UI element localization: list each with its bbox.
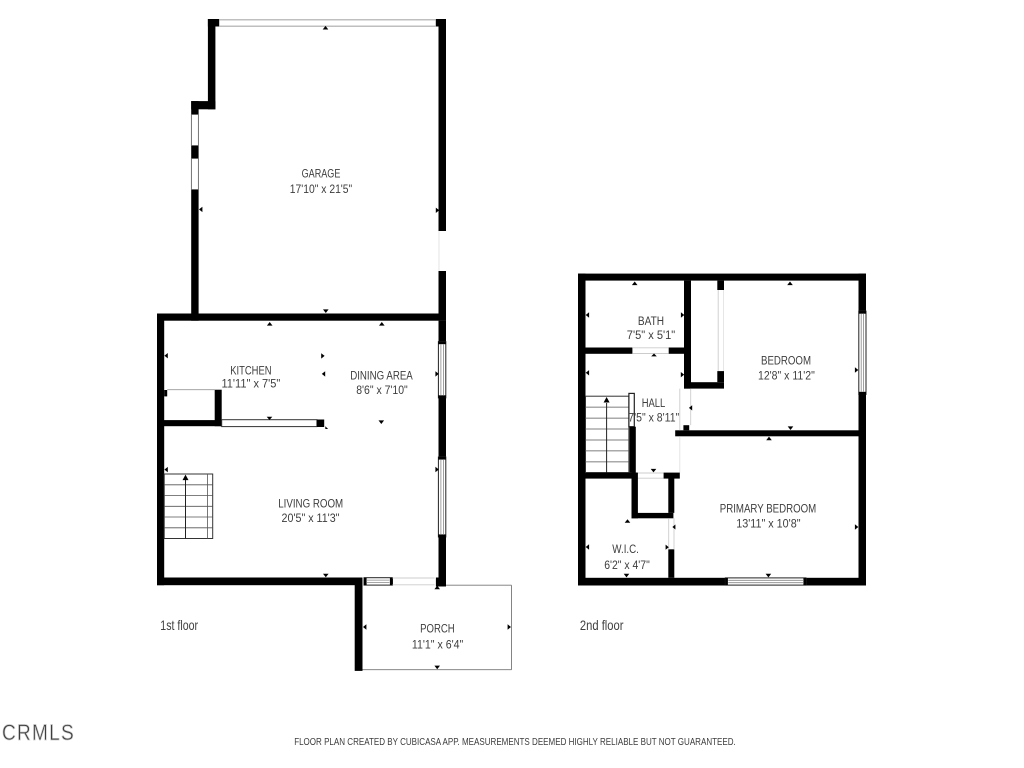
svg-text:17'10" x 21'5": 17'10" x 21'5" — [290, 184, 352, 196]
svg-text:2nd floor: 2nd floor — [580, 617, 624, 633]
svg-text:DINING AREA: DINING AREA — [350, 370, 413, 382]
svg-text:7'5" x 5'1": 7'5" x 5'1" — [627, 330, 675, 342]
svg-text:W.I.C.: W.I.C. — [612, 544, 639, 556]
svg-text:20'5" x 11'3": 20'5" x 11'3" — [282, 513, 340, 525]
svg-text:PORCH: PORCH — [420, 624, 455, 636]
svg-text:13'11" x 10'8": 13'11" x 10'8" — [736, 518, 800, 530]
svg-text:7'5" x 8'11": 7'5" x 8'11" — [628, 413, 679, 425]
svg-text:8'6" x 7'10": 8'6" x 7'10" — [356, 385, 408, 397]
svg-text:BATH: BATH — [638, 316, 664, 328]
svg-text:KITCHEN: KITCHEN — [230, 365, 271, 377]
svg-text:1st floor: 1st floor — [160, 617, 198, 633]
svg-text:12'8" x 11'2": 12'8" x 11'2" — [758, 371, 815, 383]
svg-text:HALL: HALL — [642, 398, 666, 410]
svg-text:LIVING ROOM: LIVING ROOM — [278, 498, 343, 510]
svg-text:GARAGE: GARAGE — [302, 169, 341, 181]
svg-text:11'1" x 6'4": 11'1" x 6'4" — [412, 639, 463, 651]
svg-text:CRMLS: CRMLS — [2, 720, 75, 745]
svg-text:11'11" x 7'5": 11'11" x 7'5" — [221, 379, 280, 391]
svg-text:6'2" x 4'7": 6'2" x 4'7" — [604, 560, 650, 572]
svg-text:BEDROOM: BEDROOM — [761, 355, 811, 367]
svg-text:FLOOR PLAN CREATED BY CUBICASA: FLOOR PLAN CREATED BY CUBICASA APP. MEAS… — [294, 737, 736, 748]
svg-text:PRIMARY BEDROOM: PRIMARY BEDROOM — [720, 503, 817, 515]
